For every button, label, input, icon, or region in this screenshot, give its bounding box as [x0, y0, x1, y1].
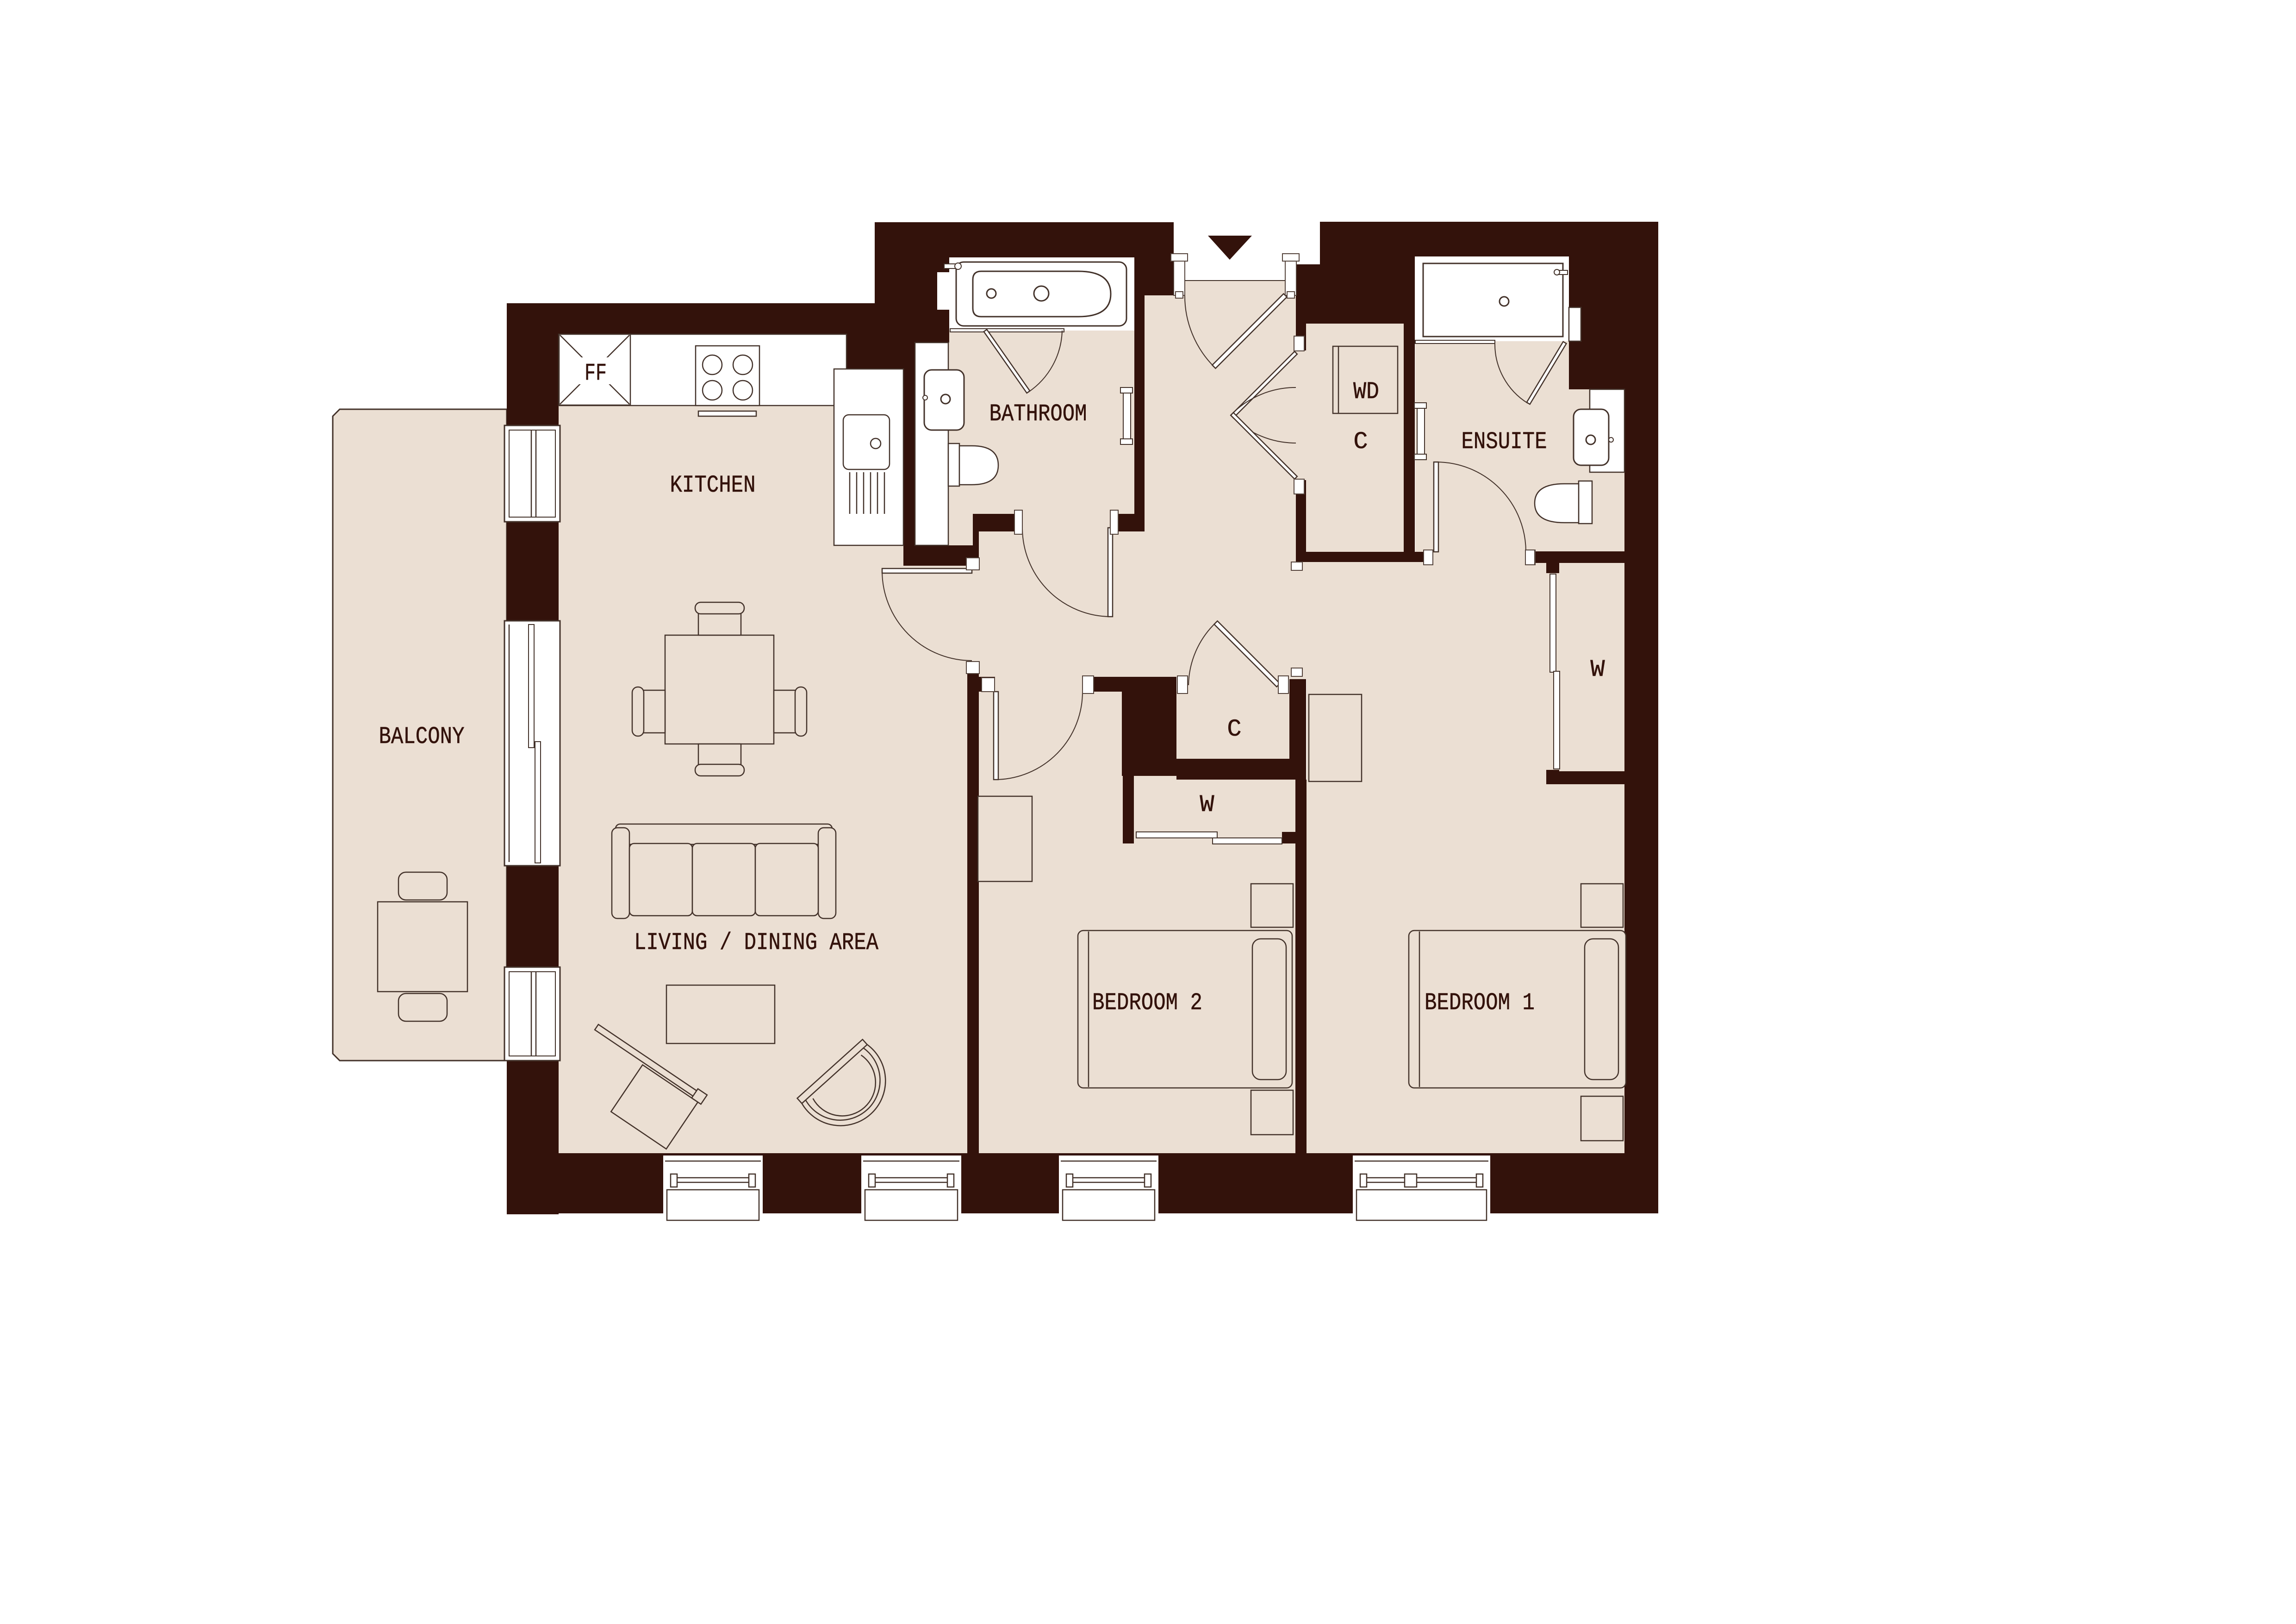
svg-text:WD: WD [1353, 378, 1379, 406]
svg-text:BEDROOM 2: BEDROOM 2 [1092, 989, 1202, 1017]
svg-text:C: C [1227, 716, 1241, 743]
svg-text:FF: FF [585, 360, 607, 387]
svg-text:BATHROOM: BATHROOM [989, 400, 1087, 428]
svg-text:W: W [1590, 656, 1605, 683]
svg-text:LIVING / DINING AREA: LIVING / DINING AREA [634, 929, 879, 956]
svg-text:ENSUITE: ENSUITE [1462, 428, 1547, 456]
svg-text:KITCHEN: KITCHEN [670, 472, 756, 499]
svg-text:BALCONY: BALCONY [379, 723, 465, 750]
svg-text:W: W [1200, 791, 1214, 818]
svg-text:C: C [1353, 428, 1368, 456]
svg-text:BEDROOM 1: BEDROOM 1 [1425, 989, 1535, 1017]
